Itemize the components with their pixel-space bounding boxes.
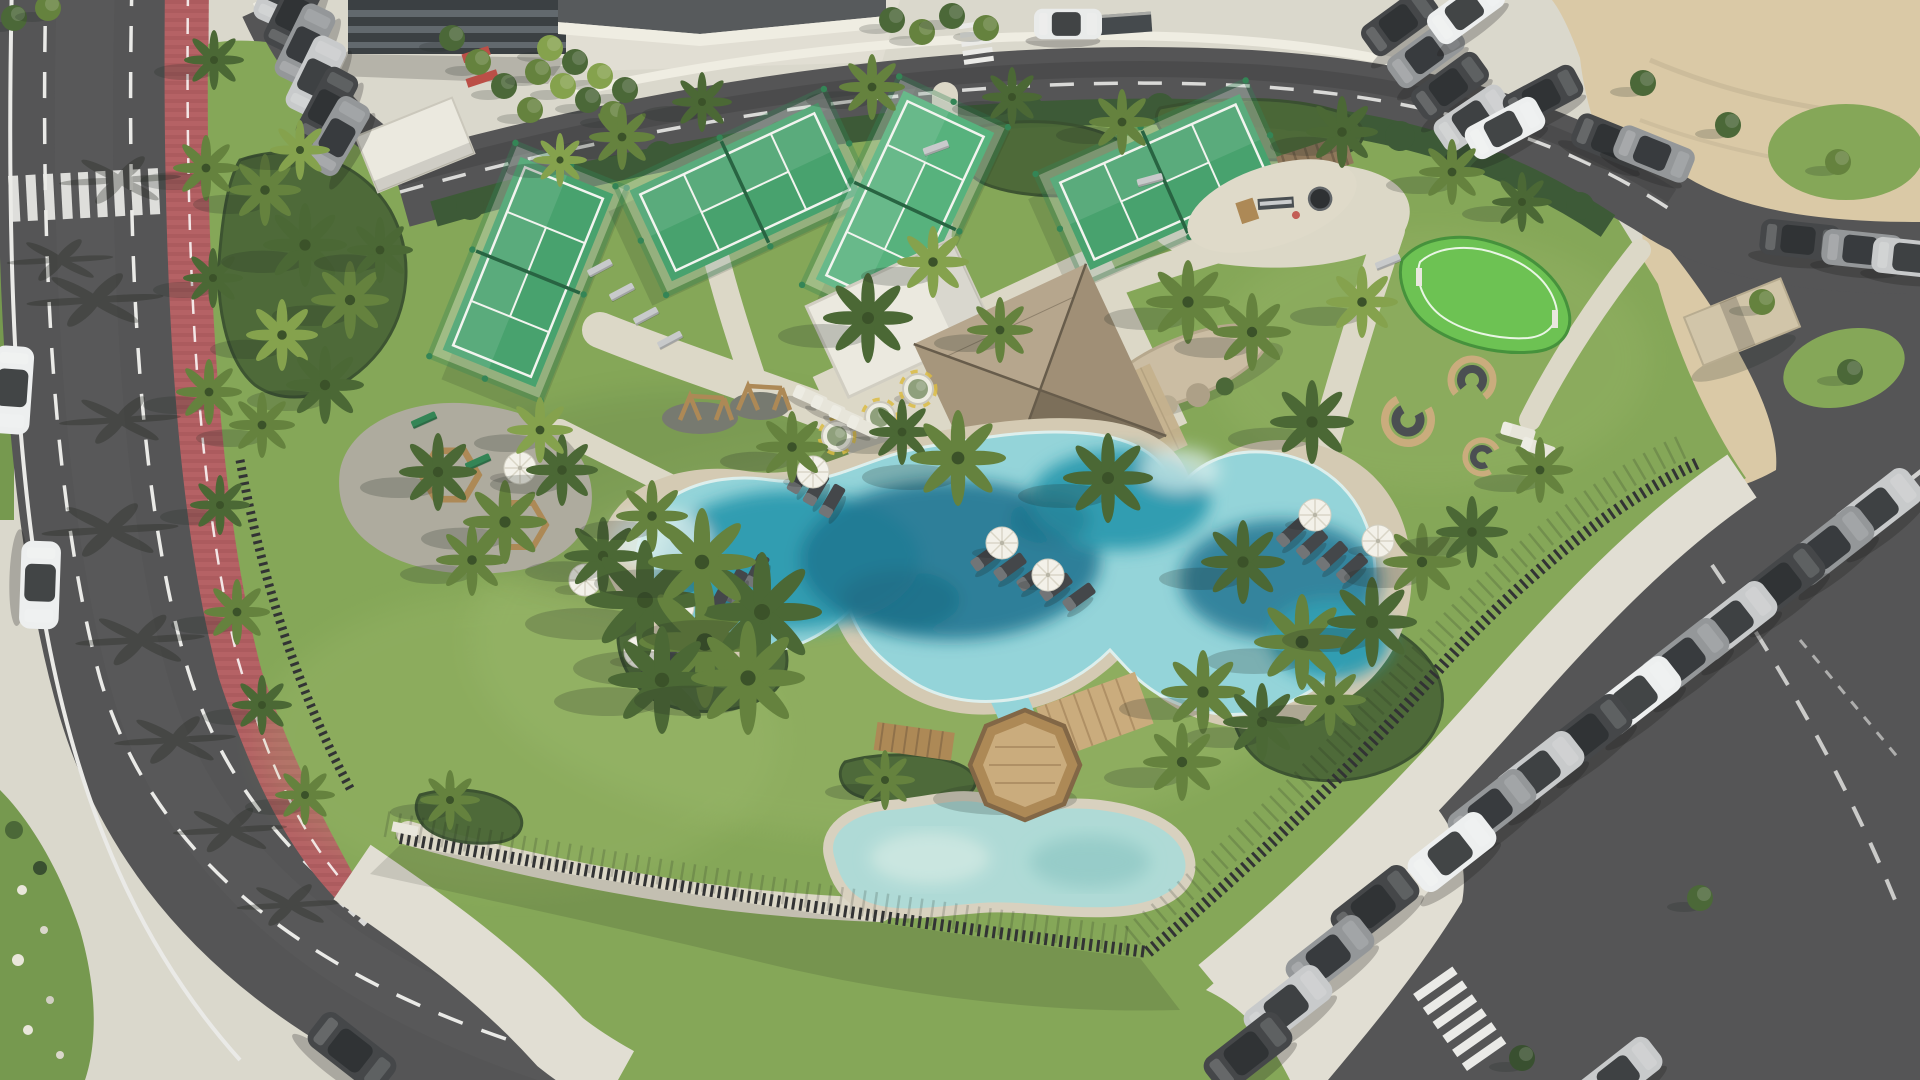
aerial-resort-photo	[0, 0, 1920, 1080]
screenshot-root: Aerial daytime view of a seaside resort …	[0, 0, 1920, 1080]
sunlight-veil	[0, 0, 1920, 1080]
